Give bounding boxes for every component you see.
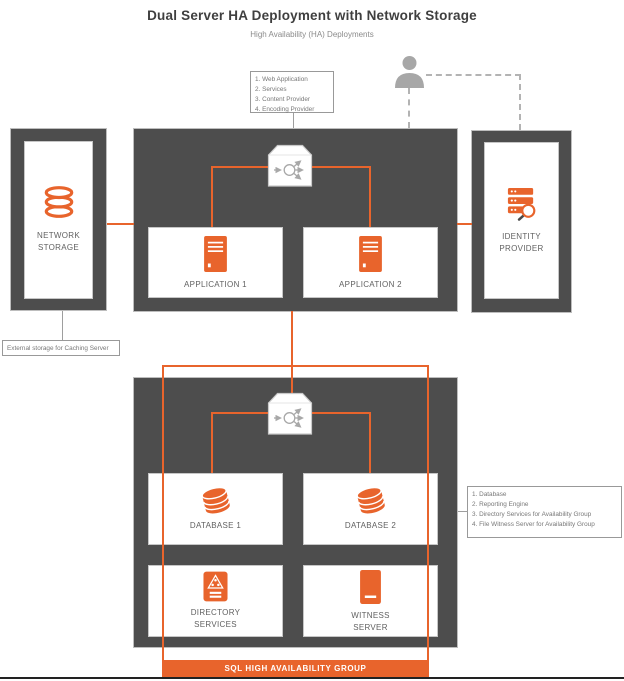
annotation-line: 4. File Witness Server for Availability …	[472, 520, 617, 530]
annotation-line: 4. Encoding Provider	[255, 105, 329, 115]
annotation-external-storage: External storage for Caching Server	[2, 340, 120, 356]
connector-apps-to-identity	[457, 223, 472, 225]
server-tower-icon	[203, 235, 228, 273]
connector-lb1-app1-h	[211, 166, 268, 168]
annotation-line: 1. Web Application	[255, 75, 329, 85]
connector-lb1-app2-v	[369, 166, 371, 227]
annotation-line: 2. Reporting Engine	[472, 500, 617, 510]
person-icon	[392, 55, 427, 88]
annotation-line: External storage for Caching Server	[7, 344, 115, 354]
diagram-subtitle: High Availability (HA) Deployments	[0, 30, 624, 39]
annotation-line: 3. Content Provider	[255, 95, 329, 105]
annotation-database-connector	[458, 511, 468, 512]
annotation-database-services: 1. Database 2. Reporting Engine 3. Direc…	[467, 486, 622, 538]
node-label: APPLICATION 1	[184, 279, 247, 291]
connector-storage-to-apps	[107, 223, 134, 225]
diagram-title: Dual Server HA Deployment with Network S…	[0, 8, 624, 23]
connector-lb1-app1-v	[211, 166, 213, 227]
diagram-canvas: Dual Server HA Deployment with Network S…	[0, 0, 624, 681]
load-balancer-icon	[267, 392, 313, 436]
node-identity-provider: IDENTITY PROVIDER	[484, 142, 559, 299]
user-identity-dashed-connector	[426, 74, 521, 76]
annotation-line: 3. Directory Services for Availability G…	[472, 510, 617, 520]
server-tower-icon	[358, 235, 383, 273]
annotation-services-connector	[293, 113, 294, 128]
annotation-line: 1. Database	[472, 490, 617, 500]
server-search-icon	[505, 187, 538, 221]
node-label: IDENTITY PROVIDER	[491, 231, 553, 255]
node-application-2: APPLICATION 2	[303, 227, 438, 298]
node-label: NETWORK STORAGE	[28, 230, 90, 254]
node-network-storage: NETWORK STORAGE	[24, 141, 93, 299]
node-label: APPLICATION 2	[339, 279, 402, 291]
annotation-storage-connector	[62, 311, 63, 340]
sql-ha-group-label: SQL HIGH AVAILABILITY GROUP	[162, 660, 429, 677]
connector-lb1-app2-h	[312, 166, 371, 168]
node-application-1: APPLICATION 1	[148, 227, 283, 298]
user-apps-dashed-connector	[408, 88, 410, 128]
load-balancer-icon	[267, 144, 313, 188]
annotation-line: 2. Services	[255, 85, 329, 95]
user-identity-dashed-connector-vertical	[519, 74, 521, 130]
storage-disks-icon	[42, 186, 76, 218]
annotation-app-services: 1. Web Application 2. Services 3. Conten…	[250, 71, 334, 113]
page-bottom-rule	[0, 677, 624, 679]
